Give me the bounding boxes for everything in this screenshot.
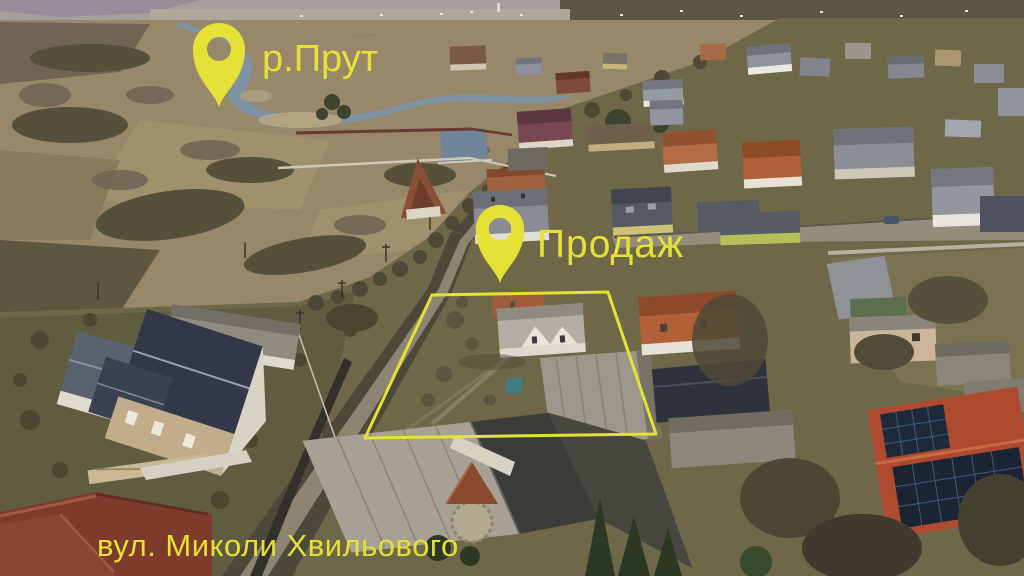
street-label: вул. Миколи Хвильового bbox=[97, 528, 459, 563]
river-pin-label: р.Прут bbox=[262, 38, 378, 80]
sale-pin-label: Продаж bbox=[537, 223, 684, 266]
aerial-photo: р.Прут Продаж вул. Миколи Хвильового bbox=[0, 0, 1024, 576]
